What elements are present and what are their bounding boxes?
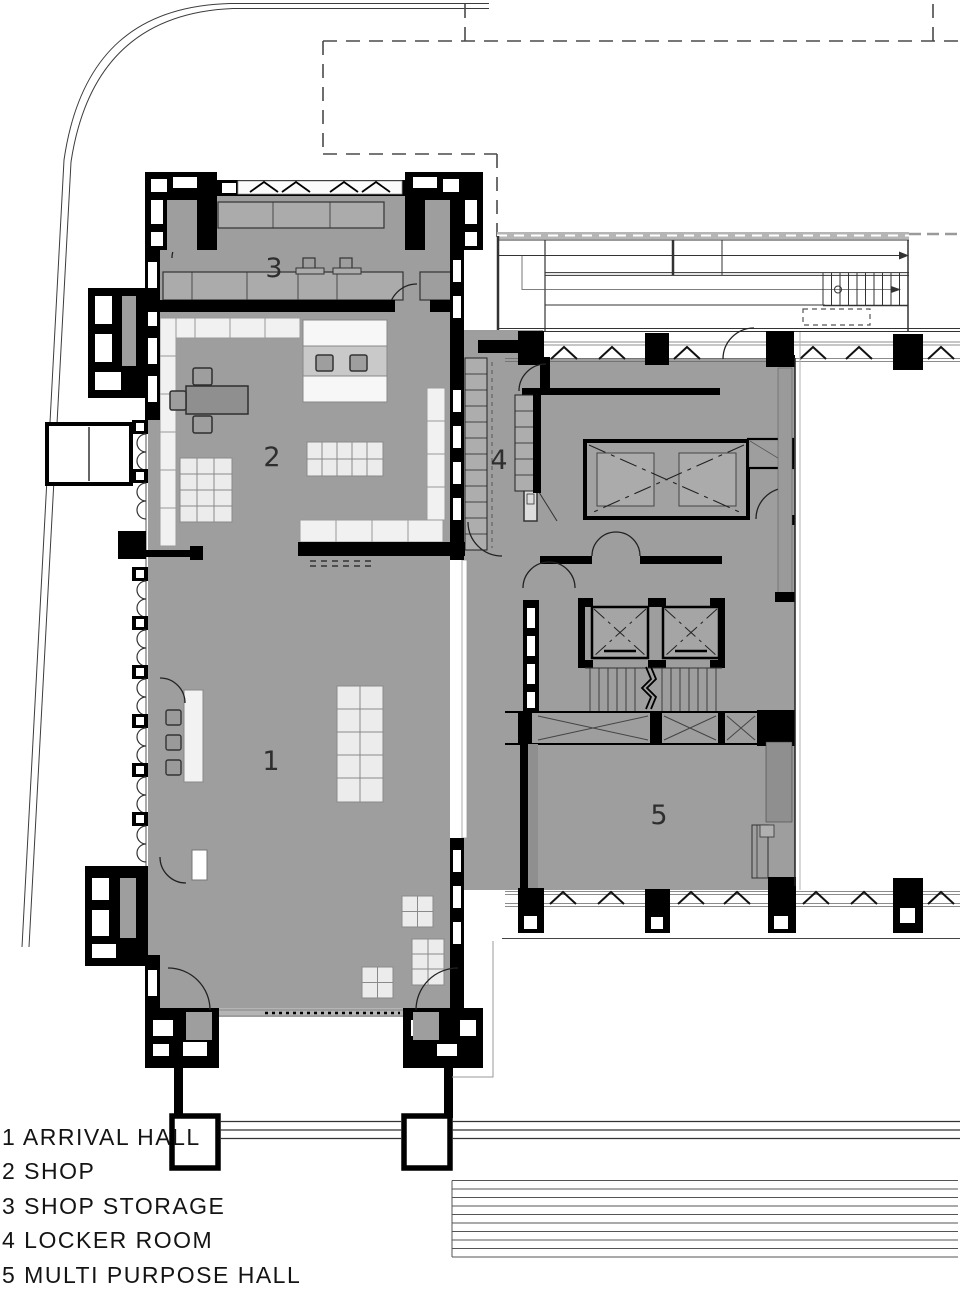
pilaster-cluster (85, 866, 148, 966)
column (645, 333, 669, 365)
hall-table (412, 939, 444, 985)
room-label-4: 4 (490, 445, 507, 476)
dashed-overhead-object (803, 309, 870, 325)
cashier-counter (303, 320, 387, 402)
display-table (307, 442, 383, 476)
display-table (180, 458, 232, 522)
exterior-steps (452, 1181, 958, 1258)
column (893, 334, 923, 370)
room-label-1: 1 (262, 746, 279, 777)
pilaster-cluster (145, 172, 217, 252)
legend-item-5: 5 MULTI PURPOSE HALL (2, 1262, 301, 1288)
column (444, 1066, 453, 1118)
upper-corridor-ramp (497, 232, 960, 332)
column (174, 1066, 183, 1118)
storage-counter (218, 202, 384, 228)
chair (170, 391, 186, 410)
chair (316, 355, 333, 371)
room-label-5: 5 (650, 800, 667, 831)
wall-cabinet (192, 850, 207, 880)
legend-item-4: 4 LOCKER ROOM (2, 1227, 213, 1253)
legend-item-1: 1 ARRIVAL HALL (2, 1124, 201, 1150)
storage-counter (163, 272, 403, 300)
pilaster-cluster (403, 1008, 483, 1068)
floor-plan-canvas: 1 2 3 4 5 1 ARRIVAL HALL 2 SHOP 3 SHOP S… (0, 0, 960, 1298)
legend-item-3: 3 SHOP STORAGE (2, 1193, 225, 1219)
legend-item-2: 2 SHOP (2, 1158, 95, 1184)
hall-table (337, 686, 383, 802)
pilaster-cluster (405, 172, 483, 252)
chair (166, 735, 181, 750)
column (893, 878, 923, 933)
glazed-partition (462, 560, 467, 838)
entrance-portico (172, 1066, 960, 1168)
door-arc (723, 328, 754, 359)
legend: 1 ARRIVAL HALL 2 SHOP 3 SHOP STORAGE 4 L… (2, 1124, 301, 1288)
hall-table (402, 896, 433, 927)
chair (166, 760, 181, 775)
elevator-bank-large (585, 441, 748, 518)
chair (193, 368, 212, 385)
pilaster-cluster (145, 1008, 219, 1068)
chair (350, 355, 367, 371)
floor-plan-page: 1 2 3 4 5 1 ARRIVAL HALL 2 SHOP 3 SHOP S… (0, 0, 960, 1298)
column-base (404, 1116, 450, 1168)
hall-table (362, 967, 393, 998)
chair (166, 710, 181, 725)
room-label-3: 3 (265, 253, 282, 284)
west-annex (88, 288, 145, 398)
room-label-2: 2 (263, 442, 280, 473)
chair (193, 416, 212, 433)
